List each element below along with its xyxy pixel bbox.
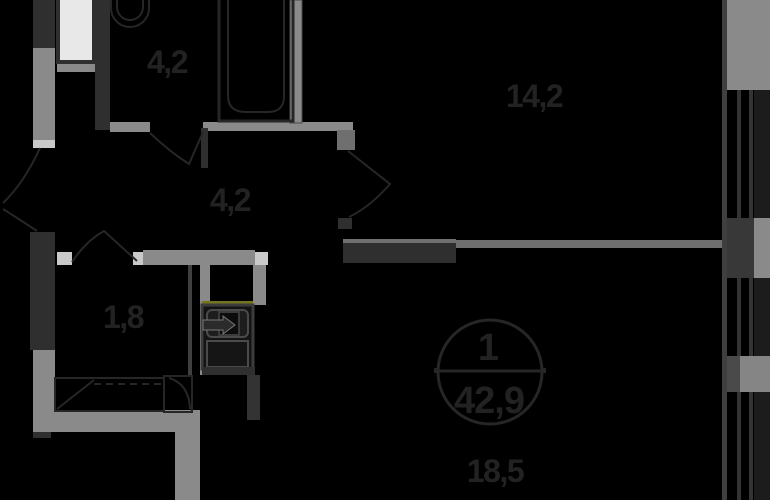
wall <box>33 0 55 48</box>
window-frame <box>754 392 770 500</box>
wall <box>33 350 55 412</box>
room-label-bathroom: 4,2 <box>147 44 188 80</box>
entrance-door-arc <box>3 209 37 231</box>
wall-stub <box>247 375 260 420</box>
line-cap <box>434 368 439 373</box>
window-frame <box>754 278 770 356</box>
wall <box>722 0 727 500</box>
wardrobe-symbol <box>55 376 192 412</box>
bathroom-door-arc <box>150 132 203 164</box>
glazing-line <box>737 392 741 500</box>
door-jamb <box>255 252 268 265</box>
wall <box>343 239 456 243</box>
entrance-door-arc <box>3 148 40 203</box>
wall <box>203 122 353 131</box>
floor-plan-canvas: 1 42,9 4,2 14,2 4,2 1,8 18,5 <box>0 0 770 500</box>
door-jamb <box>338 218 352 229</box>
window-top <box>737 90 770 218</box>
room-label-living-room: 14,2 <box>506 78 563 114</box>
wall <box>143 250 255 265</box>
wall <box>33 410 200 432</box>
wall-pier <box>727 356 740 392</box>
unit-number: 1 <box>478 327 499 369</box>
door-jamb <box>33 140 55 148</box>
wall <box>30 232 55 350</box>
floor-plan: 1 42,9 4,2 14,2 4,2 1,8 18,5 <box>0 0 770 500</box>
wall <box>110 122 150 132</box>
wall <box>95 0 110 130</box>
wall-pier <box>754 218 770 278</box>
wall-pier <box>727 218 754 278</box>
wardrobe-door-arc <box>72 231 137 262</box>
wall <box>33 432 51 438</box>
unit-circle: 1 42,9 <box>434 320 546 424</box>
shaft-lower <box>207 341 248 367</box>
wall <box>175 412 200 500</box>
glazing-line <box>749 392 753 500</box>
glazing-line <box>737 278 741 356</box>
glazing-line <box>749 278 753 356</box>
unit-total-area: 42,9 <box>454 380 524 422</box>
room-label-main-room: 18,5 <box>467 453 524 489</box>
walls <box>30 0 722 500</box>
compartment-door-arc <box>169 378 190 409</box>
living-room-door-arc <box>348 151 390 217</box>
door-jamb <box>57 252 72 265</box>
window-frame <box>754 90 770 218</box>
wall <box>343 243 456 263</box>
glazing-line <box>737 90 741 218</box>
doors <box>3 132 390 262</box>
vent-shaft-symbol <box>202 301 255 375</box>
sink <box>111 0 149 27</box>
wall <box>33 48 55 140</box>
door-leaf <box>58 0 94 62</box>
line-cap <box>541 368 546 373</box>
wall <box>253 265 266 305</box>
door-jamb <box>337 130 355 150</box>
glazing-line <box>749 90 753 218</box>
window-middle <box>737 278 770 356</box>
exterior-wall-windows <box>722 0 770 500</box>
room-label-wardrobe: 1,8 <box>103 299 144 335</box>
bathtub <box>219 0 293 121</box>
room-label-hallway: 4,2 <box>210 182 251 218</box>
wall <box>188 265 192 375</box>
shaft-base <box>202 367 255 375</box>
window-bottom <box>737 392 770 500</box>
wall <box>456 240 722 248</box>
wall-pier <box>727 0 770 90</box>
